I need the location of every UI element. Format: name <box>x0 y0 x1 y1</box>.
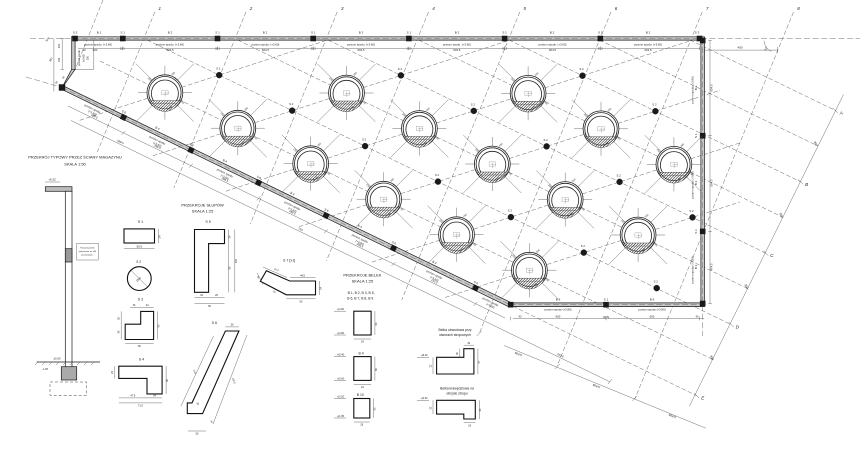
svg-text:S 2: S 2 <box>435 173 440 177</box>
svg-text:S 2: S 2 <box>216 67 221 71</box>
svg-text:S 7 [x1]: S 7 [x1] <box>283 258 295 262</box>
svg-text:S 2: S 2 <box>136 260 141 264</box>
svg-text:604.5: 604.5 <box>710 179 714 186</box>
svg-text:+|1.95: +|1.95 <box>337 415 345 418</box>
svg-text:20.5: 20.5 <box>407 48 412 51</box>
svg-text:-1.05: -1.05 <box>42 368 48 371</box>
svg-text:B 2: B 2 <box>168 31 173 35</box>
svg-text:S 2: S 2 <box>543 138 548 142</box>
svg-text:S 1: S 1 <box>407 31 412 35</box>
svg-text:A: A <box>839 110 843 115</box>
svg-text:+|3.60: +|3.60 <box>337 332 345 335</box>
svg-text:B 3: B 3 <box>694 264 698 269</box>
svg-text:Belka obwodowa przy: Belka obwodowa przy <box>439 328 472 332</box>
svg-text:S 1: S 1 <box>215 31 220 35</box>
svg-text:poziom spodu (+3.80): poziom spodu (+3.80) <box>691 76 695 103</box>
svg-text:S 1: S 1 <box>138 220 143 224</box>
svg-text:S 2: S 2 <box>471 102 476 106</box>
svg-text:24: 24 <box>158 235 162 239</box>
svg-text:B 6: B 6 <box>650 298 655 302</box>
svg-text:poziom spodu (+3.80): poziom spodu (+3.80) <box>638 308 665 312</box>
svg-text:(20.5): (20.5) <box>603 316 610 319</box>
svg-text:S 1: S 1 <box>121 31 126 35</box>
svg-text:+|3.20: +|3.20 <box>337 396 345 399</box>
svg-text:20.5: 20.5 <box>120 48 125 51</box>
svg-text:B 2: B 2 <box>359 31 364 35</box>
svg-text:(+3.60): (+3.60) <box>83 54 86 62</box>
svg-text:poziom spodu. (+3.60): poziom spodu. (+3.60) <box>84 43 112 47</box>
svg-text:poziom spodu. (+3.60): poziom spodu. (+3.60) <box>156 43 184 47</box>
svg-text:20.5: 20.5 <box>311 48 316 51</box>
svg-text:474.5: 474.5 <box>710 263 714 270</box>
svg-text:S 1: S 1 <box>604 298 609 302</box>
svg-text:+|4.32: +|4.32 <box>421 397 429 400</box>
svg-text:S 2: S 2 <box>652 103 657 107</box>
svg-text:47.5: 47.5 <box>130 395 135 398</box>
svg-text:S 3: S 3 <box>138 297 143 301</box>
svg-text:SKALA 1:50: SKALA 1:50 <box>64 162 86 167</box>
svg-text:B: B <box>805 182 808 187</box>
svg-text:50.5: 50.5 <box>137 245 143 249</box>
svg-text:S 1: S 1 <box>311 31 316 35</box>
svg-text:600: 600 <box>556 315 561 319</box>
svg-text:105: 105 <box>235 258 238 263</box>
svg-text:poziom spodu (+3.80): poziom spodu (+3.80) <box>691 256 695 283</box>
svg-text:20.5: 20.5 <box>215 48 220 51</box>
svg-text:71.5: 71.5 <box>138 405 143 408</box>
svg-text:poziom spodu. (+3.60): poziom spodu. (+3.60) <box>347 43 375 47</box>
svg-text:B 3: B 3 <box>694 85 698 90</box>
svg-text:B 4: B 4 <box>359 351 364 355</box>
svg-text:S 2: S 2 <box>362 138 367 142</box>
svg-text:SKALA 1:25: SKALA 1:25 <box>192 209 214 214</box>
svg-text:obrysie stropu: obrysie stropu <box>446 392 467 396</box>
svg-text:+|5.40: +|5.40 <box>337 354 345 357</box>
svg-text:S 4: S 4 <box>139 358 144 362</box>
svg-text:otworach stropowych: otworach stropowych <box>439 333 471 337</box>
svg-text:S 1: S 1 <box>502 31 507 35</box>
svg-text:Poziomy belek: Poziomy belek <box>80 247 95 249</box>
svg-text:S 2: S 2 <box>289 102 294 106</box>
svg-text:+|6.20: +|6.20 <box>421 354 429 357</box>
svg-text:140: 140 <box>57 57 61 62</box>
svg-text:B 3: B 3 <box>694 180 698 185</box>
svg-text:B 10: B 10 <box>357 393 364 397</box>
svg-text:PRZEKROJE SŁUPÓW: PRZEKROJE SŁUPÓW <box>181 203 224 208</box>
svg-text:PRZEKRÓJ TYPOWY PRZEZ ŚCIANY M: PRZEKRÓJ TYPOWY PRZEZ ŚCIANY MAGAZYNU <box>28 155 122 160</box>
svg-text:150: 150 <box>87 55 90 60</box>
svg-text:20.5: 20.5 <box>598 48 603 51</box>
svg-text:B 2: B 2 <box>455 31 460 35</box>
svg-text:S 6: S 6 <box>212 321 217 325</box>
svg-text:poziom spodu. (+3.60): poziom spodu. (+3.60) <box>634 43 662 47</box>
svg-text:44.5: 44.5 <box>300 274 305 277</box>
svg-text:B 2: B 2 <box>263 31 268 35</box>
svg-text:B 6: B 6 <box>556 298 561 302</box>
svg-text:+|4.00: +|4.00 <box>337 308 345 311</box>
svg-text:B 1, B 2, B 3, B 5,: B 1, B 2, B 3, B 5, <box>348 291 375 295</box>
svg-text:połączenie na GŚ: połączenie na GŚ <box>79 250 97 253</box>
svg-text:600: 600 <box>650 315 655 319</box>
svg-text:poziom spodu. (+3.60): poziom spodu. (+3.60) <box>251 43 279 47</box>
svg-text:S 5: S 5 <box>73 31 78 35</box>
svg-text:B 2: B 2 <box>646 31 651 35</box>
svg-text:poziom spodu. (+3.60): poziom spodu. (+3.60) <box>443 43 471 47</box>
svg-text:poziom spodu (+3.80): poziom spodu (+3.80) <box>544 308 571 312</box>
svg-text:Belka krawędziowa na: Belka krawędziowa na <box>440 387 474 391</box>
svg-text:B 1: B 1 <box>97 31 102 35</box>
svg-text:S 2: S 2 <box>654 280 659 284</box>
svg-text:S 2: S 2 <box>508 209 513 213</box>
svg-text:S 2: S 2 <box>616 173 621 177</box>
svg-text:+|5.00: +|5.00 <box>337 377 345 380</box>
svg-text:S 1: S 1 <box>694 229 698 234</box>
svg-text:S 2: S 2 <box>579 67 584 71</box>
svg-text:przekrojach.: przekrojach. <box>81 253 93 256</box>
svg-text:B 6, B 7, B 8, B 9: B 6, B 7, B 8, B 9 <box>347 297 373 301</box>
svg-text:B 2: B 2 <box>550 31 555 35</box>
svg-text:2: 2 <box>249 6 253 11</box>
svg-text:S 2: S 2 <box>689 209 694 213</box>
svg-text:±0.00: ±0.00 <box>54 357 61 361</box>
svg-text:100: 100 <box>57 43 61 48</box>
svg-text:+6.22: +6.22 <box>48 178 56 182</box>
svg-text:poziom spodu. (+3.60): poziom spodu. (+3.60) <box>539 43 567 47</box>
svg-text:SKALA 1:25: SKALA 1:25 <box>352 279 374 284</box>
svg-text:604.5: 604.5 <box>710 84 714 91</box>
svg-text:400: 400 <box>737 46 742 50</box>
svg-text:PRZEKROJE BELEK: PRZEKROJE BELEK <box>343 273 381 278</box>
svg-text:S 2: S 2 <box>581 244 586 248</box>
svg-text:S 5: S 5 <box>205 220 210 224</box>
svg-text:S 3: S 3 <box>695 31 700 35</box>
svg-text:S 1: S 1 <box>694 133 698 138</box>
svg-text:S 2: S 2 <box>398 67 403 71</box>
svg-text:poziom spodu: poziom spodu <box>78 50 81 66</box>
svg-text:20.5: 20.5 <box>502 48 507 51</box>
svg-text:S 1: S 1 <box>598 31 603 35</box>
